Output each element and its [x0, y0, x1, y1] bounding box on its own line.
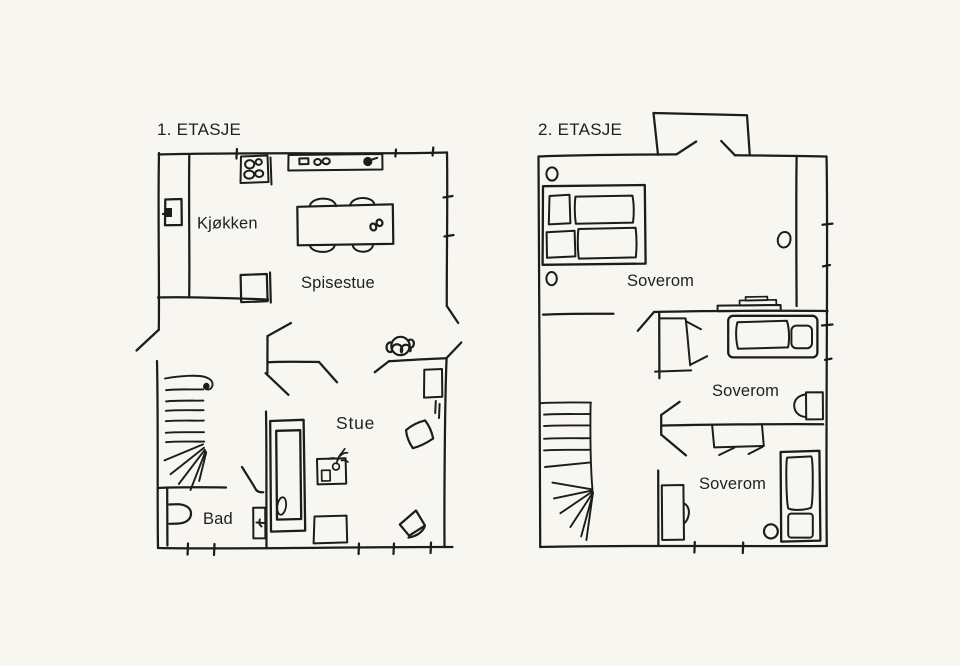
svg-text:Kjøkken: Kjøkken — [197, 215, 258, 233]
svg-text:Stue: Stue — [336, 413, 375, 433]
svg-text:Bad: Bad — [203, 510, 233, 528]
svg-text:Soverom: Soverom — [712, 382, 779, 400]
svg-text:Soverom: Soverom — [699, 475, 766, 493]
svg-text:Soverom: Soverom — [627, 272, 694, 290]
svg-text:1. ETASJE: 1. ETASJE — [157, 120, 241, 139]
svg-text:Spisestue: Spisestue — [301, 274, 375, 292]
svg-text:2. ETASJE: 2. ETASJE — [538, 120, 622, 139]
